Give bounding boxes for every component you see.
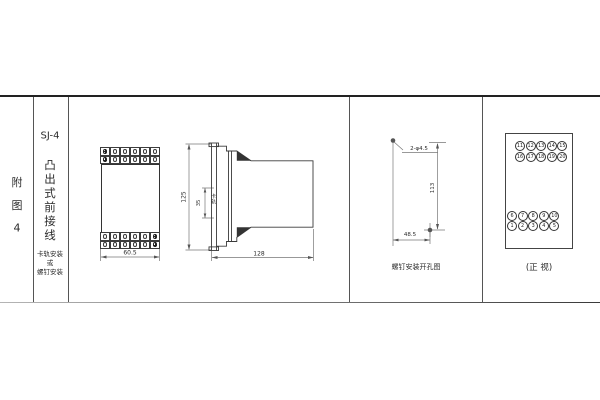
terminal-cell — [150, 241, 160, 250]
terminal-cell — [130, 241, 140, 250]
screw-terminal-icon — [103, 149, 108, 154]
terminal-icon — [123, 242, 128, 247]
terminal-icon — [143, 234, 148, 239]
side-height-dim: 125 — [181, 191, 188, 202]
terminal-icon — [133, 157, 138, 162]
terminal-number: 6 — [507, 211, 517, 221]
terminal-icon — [153, 149, 158, 154]
terminal-cell — [100, 232, 110, 241]
terminal-number: 4 — [539, 221, 549, 231]
terminal-cell — [110, 232, 120, 241]
terminal-number-row: 16 17 18 19 20 — [515, 152, 567, 162]
terminal-cell — [100, 241, 110, 250]
terminal-number: 2 — [518, 221, 528, 231]
terminal-number: 18 — [536, 152, 546, 162]
screw-terminal-icon — [103, 157, 108, 162]
terminal-icon — [123, 157, 128, 162]
figure-label-char: 附 — [12, 174, 23, 190]
terminal-view-caption: (正 视) — [526, 261, 552, 273]
drill-height-dim: 113 — [430, 183, 436, 194]
terminal-cell — [140, 232, 150, 241]
drill-caption: 螺钉安装开孔图 — [392, 262, 441, 272]
divider-col4 — [482, 97, 483, 302]
terminal-row — [100, 232, 160, 241]
terminal-cell — [120, 232, 130, 241]
terminal-number: 17 — [526, 152, 536, 162]
terminal-number: 7 — [518, 211, 528, 221]
terminal-icon — [103, 242, 108, 247]
terminal-number: 15 — [557, 141, 567, 151]
figure-label-char: 4 — [14, 222, 21, 235]
drill-holes-label: 2-φ4.5 — [410, 146, 428, 152]
terminal-number: 11 — [515, 141, 525, 151]
terminal-number: 3 — [528, 221, 538, 231]
rail-slot-dim: 35 — [196, 200, 202, 207]
type-char: 线 — [44, 227, 56, 243]
terminal-cell — [150, 147, 160, 156]
relay-bottom-terminal-strip — [100, 232, 160, 249]
terminal-number-row: 11 12 13 14 15 — [515, 141, 567, 151]
divider-col3 — [349, 97, 350, 302]
terminal-number: 8 — [528, 211, 538, 221]
terminal-number-row: 1 2 3 4 5 — [507, 221, 559, 231]
terminal-icon — [113, 242, 118, 247]
terminal-cell — [110, 241, 120, 250]
screw-terminal-icon — [153, 242, 158, 247]
terminal-number: 9 — [539, 211, 549, 221]
terminal-number: 5 — [549, 221, 559, 231]
terminal-icon — [103, 234, 108, 239]
drawing-page: 附 图 4 SJ-4 凸 出 式 前 接 线 卡轨安装 或 螺钉安装 — [0, 0, 600, 400]
terminal-icon — [113, 234, 118, 239]
terminal-number: 19 — [547, 152, 557, 162]
band-bottom-border — [0, 302, 600, 303]
terminal-icon — [133, 242, 138, 247]
divider-col1 — [33, 97, 34, 302]
terminal-icon — [153, 157, 158, 162]
side-depth-dim: 128 — [253, 250, 264, 257]
terminal-icon — [133, 149, 138, 154]
drill-width-dim: 48.5 — [404, 232, 416, 238]
terminal-icon — [143, 149, 148, 154]
terminal-cell — [140, 147, 150, 156]
terminal-cell — [120, 241, 130, 250]
terminal-icon — [123, 149, 128, 154]
terminal-cell — [130, 147, 140, 156]
terminal-icon — [123, 234, 128, 239]
terminal-icon — [143, 157, 148, 162]
relay-body-front — [101, 164, 160, 233]
terminal-icon — [133, 234, 138, 239]
terminal-cell — [140, 241, 150, 250]
terminal-cell — [150, 232, 160, 241]
terminal-number: 14 — [547, 141, 557, 151]
model-label: SJ-4 — [41, 131, 60, 142]
terminal-row — [100, 147, 160, 156]
terminal-icon — [143, 242, 148, 247]
rail-slot-label: 卡轨 — [210, 194, 217, 205]
terminal-number: 12 — [526, 141, 536, 151]
divider-col2 — [68, 97, 69, 302]
terminal-icon — [113, 157, 118, 162]
terminal-cell — [120, 147, 130, 156]
terminal-number: 16 — [515, 152, 525, 162]
mount-note-line: 螺钉安装 — [37, 266, 63, 276]
terminal-number: 13 — [536, 141, 546, 151]
terminal-icon — [113, 149, 118, 154]
band-top-border — [0, 95, 600, 97]
screw-terminal-icon — [153, 234, 158, 239]
terminal-number: 10 — [549, 211, 559, 221]
terminal-cell — [100, 147, 110, 156]
front-width-dim: 60.5 — [123, 250, 136, 257]
terminal-number: 20 — [557, 152, 567, 162]
relay-top-terminal-strip — [100, 147, 160, 164]
terminal-row — [100, 241, 160, 250]
terminal-cell — [110, 147, 120, 156]
figure-label-char: 图 — [12, 197, 23, 213]
terminal-number: 1 — [507, 221, 517, 231]
terminal-number-row: 6 7 8 9 10 — [507, 211, 559, 221]
terminal-cell — [130, 232, 140, 241]
